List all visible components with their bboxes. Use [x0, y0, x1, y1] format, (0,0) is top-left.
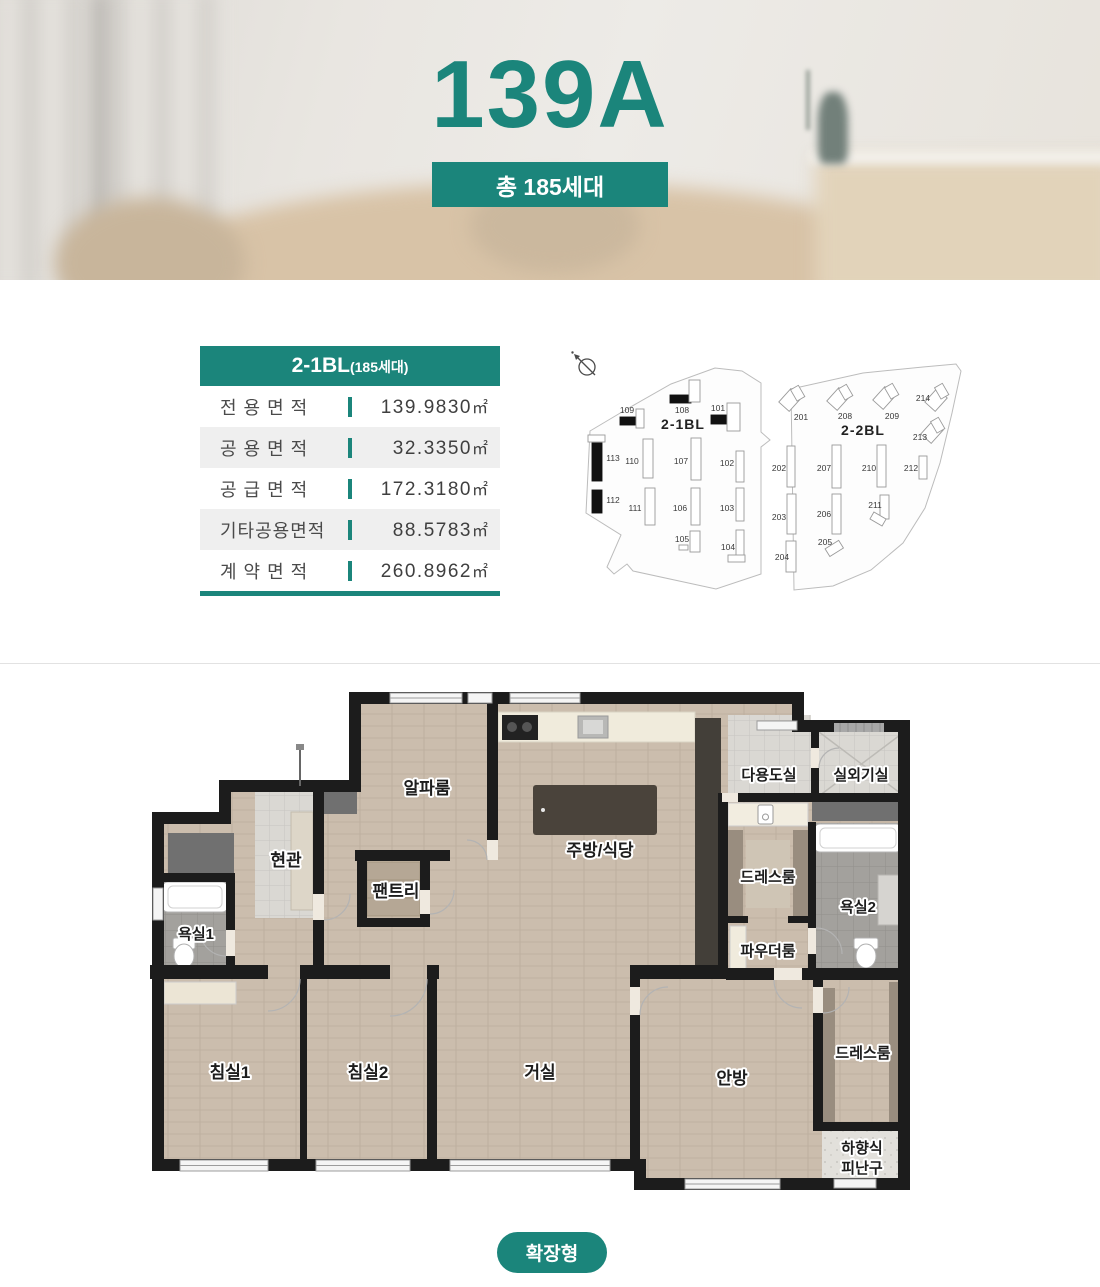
section-divider — [0, 663, 1100, 664]
room-label-dress2: 드레스룸 — [835, 1045, 890, 1062]
building-203: 203 — [772, 494, 796, 534]
teal-separator — [348, 397, 352, 417]
teal-separator — [348, 520, 352, 540]
area-table: 2-1BL(185세대) 전 용 면 적 139.9830㎡ 공 용 면 적 3… — [200, 346, 500, 596]
room-label-living: 거실 — [524, 1063, 555, 1082]
hero-cabinet-top-decor — [810, 150, 1100, 164]
svg-text:104: 104 — [721, 542, 735, 552]
room-label-hatch: 피난구 — [841, 1160, 883, 1177]
block-label: 2-1BL — [661, 416, 705, 432]
room-label-master: 안방 — [716, 1069, 748, 1088]
table-row: 공 급 면 적 172.3180㎡ — [200, 468, 500, 509]
teal-separator — [348, 479, 352, 499]
row-label: 공 급 면 적 — [220, 476, 346, 502]
svg-text:209: 209 — [885, 411, 899, 421]
svg-text:105: 105 — [675, 534, 689, 544]
row-value: 88.5783㎡ — [360, 517, 488, 542]
room-label-entrance: 현관 — [270, 851, 302, 870]
svg-text:101: 101 — [711, 403, 725, 413]
total-units-badge: 총 185세대 — [432, 162, 668, 207]
row-label: 전 용 면 적 — [220, 394, 346, 420]
building-105: 105 — [675, 531, 700, 552]
table-row: 계 약 면 적 260.8962㎡ — [200, 550, 500, 591]
svg-text:214: 214 — [916, 393, 930, 403]
block-units: (185세대) — [350, 347, 408, 387]
svg-text:207: 207 — [817, 463, 831, 473]
svg-text:213: 213 — [913, 432, 927, 442]
room-label-bed1: 침실1 — [210, 1062, 251, 1082]
room-label-outdoor-unit: 실외기실 — [833, 766, 888, 784]
building-204: 204 — [775, 541, 796, 572]
room-label-bath2: 욕실2 — [840, 899, 876, 916]
svg-text:204: 204 — [775, 552, 789, 562]
block-label: 2-2BL — [841, 422, 885, 438]
plan-type-badge[interactable]: 확장형 — [497, 1232, 607, 1273]
room-label-pantry: 팬트리 — [373, 882, 420, 901]
svg-text:212: 212 — [904, 463, 918, 473]
row-label: 계 약 면 적 — [220, 558, 346, 584]
room-label-bath1: 욕실1 — [178, 926, 214, 943]
room-label-utility: 다용도실 — [741, 767, 796, 784]
hero-banner: 139A 총 185세대 — [0, 0, 1100, 280]
svg-text:107: 107 — [674, 456, 688, 466]
block-name: 2-1BL — [292, 346, 350, 386]
svg-text:112: 112 — [606, 495, 620, 505]
svg-text:106: 106 — [673, 503, 687, 513]
building-202: 202 — [772, 446, 795, 487]
row-value: 139.9830㎡ — [360, 394, 488, 419]
row-label: 공 용 면 적 — [220, 435, 346, 461]
room-label-hatch: 하향식 — [841, 1140, 882, 1157]
table-row: 기타공용면적 88.5783㎡ — [200, 509, 500, 550]
area-table-header: 2-1BL(185세대) — [200, 346, 500, 386]
row-value: 32.3350㎡ — [360, 435, 488, 460]
svg-text:113: 113 — [606, 453, 620, 463]
hero-cabinet-decor — [815, 158, 1100, 280]
svg-text:211: 211 — [868, 500, 882, 510]
teal-separator — [348, 561, 352, 581]
svg-text:111: 111 — [629, 503, 642, 513]
room-label-kitchen: 주방/식당 — [566, 841, 634, 860]
room-label-powder: 파우더룸 — [740, 943, 795, 960]
svg-text:103: 103 — [720, 503, 734, 513]
svg-text:203: 203 — [772, 512, 786, 522]
svg-text:110: 110 — [625, 456, 639, 466]
svg-text:109: 109 — [620, 405, 634, 415]
svg-text:205: 205 — [818, 537, 832, 547]
svg-text:102: 102 — [720, 458, 734, 468]
svg-text:202: 202 — [772, 463, 786, 473]
room-label-alpha: 알파룸 — [404, 779, 451, 798]
svg-text:210: 210 — [862, 463, 876, 473]
svg-text:208: 208 — [838, 411, 852, 421]
table-row: 전 용 면 적 139.9830㎡ — [200, 386, 500, 427]
row-value: 260.8962㎡ — [360, 558, 488, 583]
unit-type-title: 139A — [0, 42, 1100, 148]
room-label-bed2: 침실2 — [348, 1062, 389, 1082]
room-label-dress1: 드레스룸 — [740, 869, 795, 886]
table-row: 공 용 면 적 32.3350㎡ — [200, 427, 500, 468]
svg-text:206: 206 — [817, 509, 831, 519]
row-value: 172.3180㎡ — [360, 476, 488, 501]
compass-icon — [571, 351, 595, 375]
floor-plan: 알파룸 주방/식당 다용도실 실외기실 현관 팬트리 욕실1 드레스룸 파우더룸… — [150, 690, 910, 1205]
unit-type-page: 139A 총 185세대 2-1BL(185세대) 전 용 면 적 139.98… — [0, 0, 1100, 1287]
svg-text:201: 201 — [794, 412, 808, 422]
svg-text:108: 108 — [675, 405, 689, 415]
site-plan: 2-1BL 101 108 109 113 112 110 111 107 10… — [563, 343, 975, 595]
row-label: 기타공용면적 — [220, 517, 346, 543]
teal-separator — [348, 438, 352, 458]
